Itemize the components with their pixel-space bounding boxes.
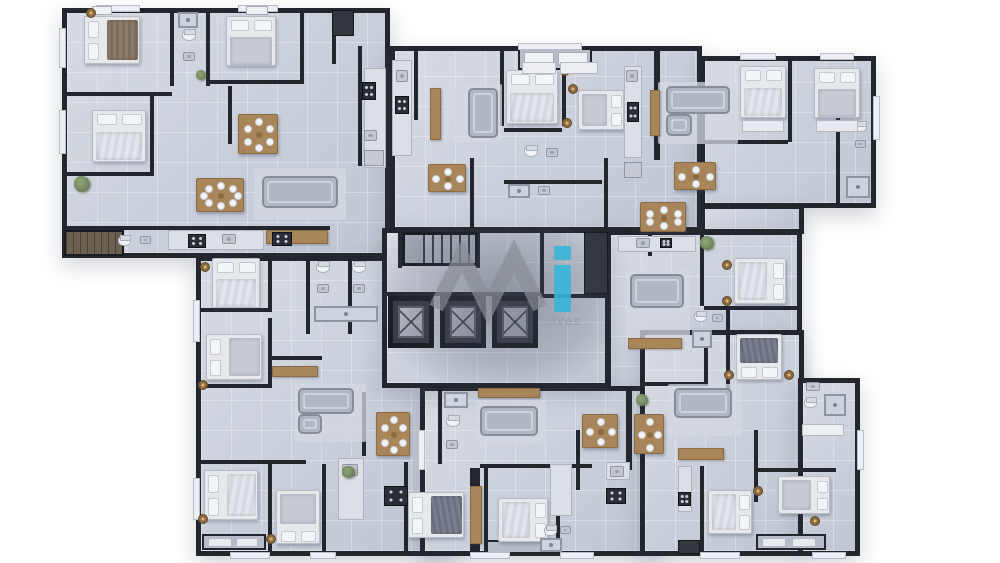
window-opening [873,96,880,140]
cooktop [188,234,206,248]
kitchen-sink [222,234,236,244]
bed-blanket [229,338,260,376]
utility-shaft [332,10,354,36]
bed-bench [816,120,858,132]
kitchen-sink [364,130,377,141]
toilet [182,30,196,41]
bed-blanket [712,494,736,530]
double-bed [84,16,140,64]
kitchen-counter [618,236,696,252]
cooktop [627,102,639,122]
bed-pillow [741,367,757,378]
table-centerpiece [598,429,604,435]
window-opening [59,28,66,68]
bed-blanket [216,279,256,307]
bed-pillow [412,518,423,534]
interior-wall [756,468,836,472]
bed-pillow [817,481,828,493]
bed-blanket [582,94,607,126]
refrigerator [364,150,384,166]
double-bed [708,490,752,534]
cooktop [362,82,376,100]
bed-pillow [511,74,530,85]
sofa [468,88,498,138]
kitchen-sink [396,70,408,82]
plant [700,236,714,250]
double-bed [578,90,624,130]
bathroom-sink [560,526,571,534]
kitchen-sink [626,70,638,82]
table-plate [674,218,682,226]
shower [508,184,530,198]
nightstand-lamp [200,262,210,272]
nightstand-lamp [266,534,276,544]
table-plate [244,125,252,133]
table-plate [381,424,389,432]
bed-blanket [738,262,767,300]
interior-wall [358,46,362,166]
toilet [544,526,557,536]
nightstand-lamp [198,514,208,524]
table-centerpiece [218,193,224,199]
dining-table [640,202,686,232]
bathroom-sink [855,140,866,148]
bed-bench [742,120,784,132]
wood-deck-terrace [64,230,124,256]
table-plate [597,418,605,426]
bed-pillow [88,21,99,38]
double-bed [212,258,260,308]
cooktop [384,486,408,506]
shower [824,394,846,416]
double-bed [506,70,558,124]
cooktop [678,492,691,506]
table-centerpiece [391,432,397,438]
bed-pillow [819,72,835,83]
nightstand-lamp [198,380,208,390]
bed-pillow [231,20,249,31]
window-opening [59,110,66,154]
window-opening [820,53,854,60]
nightstand-lamp [753,486,763,496]
interior-wall [62,172,154,176]
table-plate [266,125,274,133]
bed-pillow [281,531,296,542]
table-plate [255,144,263,152]
interior-wall [322,464,326,556]
bed-pillow [412,497,423,513]
kitchen-counter [168,230,264,250]
interior-wall [504,128,562,132]
bed-blanket [510,93,554,123]
table-plate [597,438,605,446]
bed-pillow [535,503,546,518]
table-plate [646,218,654,226]
table-plate [266,138,274,146]
bed-pillow [817,498,828,510]
window-opening [230,552,270,559]
table-plate [390,416,398,424]
window-opening [560,552,594,559]
bathroom-sink [446,440,458,449]
table-centerpiece [693,174,699,180]
table-centerpiece [256,132,262,138]
toilet [804,398,817,408]
closet-shelf [560,62,598,74]
table-plate [692,180,700,188]
bed-pillow [535,74,554,85]
table-plate [646,418,654,426]
window-opening [193,300,200,342]
shower [314,306,378,322]
double-bed [778,476,830,514]
bed-pillow [239,262,256,273]
nightstand-lamp [722,260,732,270]
table-plate [654,431,662,439]
elevator-car [398,306,424,338]
table-plate [638,431,646,439]
plant [342,466,355,478]
bed-pillow [739,495,750,510]
interior-wall [788,60,792,142]
plant [196,70,206,80]
double-bed [276,490,320,544]
interior-wall [62,92,172,96]
double-bed [204,470,258,520]
double-bed [92,110,146,162]
double-bed [814,68,860,118]
nightstand-lamp [86,8,96,18]
double-bed [226,16,276,66]
sofa [666,86,730,114]
closet-shelf [522,62,556,74]
shower [178,12,198,28]
sofa-chaise [298,414,322,434]
shower [540,538,562,552]
plant [636,394,648,406]
shower [444,392,468,408]
table-centerpiece [647,432,653,438]
table-plate [255,118,263,126]
table-centerpiece [445,176,451,182]
bathroom-sink [183,52,195,61]
tv-console [628,338,682,349]
interior-wall [576,430,580,490]
balcony-bench [792,538,816,547]
bed-pillow [611,95,622,108]
dining-table [428,164,466,192]
utility-shaft [678,540,700,554]
table-plate [390,446,398,454]
sideboard [678,448,724,460]
double-bed [734,258,786,304]
double-bed [736,334,782,380]
interior-wall [196,460,306,464]
cooktop [660,238,672,248]
cooktop [606,488,626,504]
tv-console [430,88,441,140]
dining-table [582,414,618,448]
table-centerpiece [661,215,667,221]
nightstand-lamp [568,84,578,94]
refrigerator [624,162,642,178]
interior-wall [300,8,304,84]
table-plate [200,192,208,200]
kitchen-sink [610,466,624,477]
interior-wall [306,256,310,334]
toilet [524,146,538,157]
sofa-chaise [666,114,692,136]
bed-pillow [88,43,99,60]
bed-pillow [217,262,234,273]
bed-pillow [210,339,221,355]
bed-blanket [740,338,778,363]
sofa [298,388,354,414]
nightstand-lamp [784,370,794,380]
dining-table [238,114,278,154]
table-plate [456,175,464,183]
bed-blanket [502,502,530,538]
table-plate [244,138,252,146]
table-plate [674,210,682,218]
sofa [480,406,538,436]
double-bed [740,66,786,118]
table-plate [660,222,668,230]
window-opening [812,552,846,559]
stair-landing [405,235,425,263]
interior-wall [206,8,210,86]
double-bed [408,492,464,538]
double-bed [206,334,262,380]
balcony-bench [236,538,258,547]
bed-pillow [97,114,117,125]
tv-console [478,388,540,398]
table-plate [399,424,407,432]
vent-box [246,6,268,15]
bed-pillow [254,20,272,31]
toilet [118,236,131,246]
bed-blanket [782,480,811,510]
interior-wall [272,356,322,360]
dining-table [634,414,664,454]
table-plate [678,173,686,181]
table-plate [608,428,616,436]
bed-pillow [208,498,219,516]
closet-shelf [802,424,844,436]
interior-wall [484,468,488,556]
toilet [446,416,460,427]
bed-pillow [301,531,316,542]
table-plate [229,199,237,207]
bathroom-sink [712,314,723,322]
interior-wall [438,386,442,464]
sofa [674,388,732,418]
bed-pillow [210,360,221,376]
table-plate [646,210,654,218]
sofa [630,274,684,308]
table-plate [586,428,594,436]
bathroom-sink [353,284,365,293]
window-opening [740,53,776,60]
wardrobe [470,486,482,544]
bathroom-sink [140,236,151,244]
bed-pillow [208,475,219,493]
interior-wall [170,8,174,86]
table-plate [444,168,452,176]
table-plate [381,439,389,447]
interior-wall [196,308,270,312]
cooktop [272,232,292,246]
table-plate [660,206,668,214]
bed-blanket [744,88,782,117]
table-plate [706,173,714,181]
sofa [262,176,338,208]
double-bed [498,498,548,542]
window-opening [418,430,425,470]
table-plate [432,175,440,183]
bed-pillow [762,367,778,378]
nightstand-lamp [722,296,732,306]
tv-console [650,90,660,136]
window-opening [700,552,740,559]
bed-blanket [230,37,272,65]
bed-pillow [745,70,761,81]
table-plate [692,166,700,174]
watermark-text: ives [553,314,582,328]
interior-wall [414,46,418,120]
bed-blanket [280,494,316,524]
interior-wall [704,306,802,310]
bathroom-sink [546,148,558,157]
interior-wall [150,96,154,174]
interior-wall [268,256,272,312]
bathroom-sink [538,186,550,195]
shower [692,330,712,348]
table-plate [217,202,225,210]
toilet [352,262,366,273]
bed-pillow [611,113,622,126]
interior-wall [228,86,232,144]
bed-blanket [431,496,462,534]
dining-table [376,412,410,456]
window-opening [857,430,864,470]
developer-watermark: ives [426,238,596,330]
window-opening [310,552,336,559]
interior-wall [700,466,704,556]
table-plate [399,439,407,447]
bed-blanket [818,89,856,117]
bed-pillow [773,263,784,279]
bed-pillow [773,284,784,300]
table-plate [205,185,213,193]
bed-blanket [96,132,142,161]
balcony-bench [762,538,786,547]
interior-wall [210,80,304,84]
nightstand-lamp [810,516,820,526]
interior-wall [470,158,474,232]
toilet [694,312,707,322]
bed-pillow [840,72,856,83]
nightstand-lamp [724,370,734,380]
floor-plan-canvas: ives [0,0,1000,563]
cooktop [395,96,409,114]
sideboard [272,366,318,377]
bed-blanket [107,20,138,60]
balcony-bench [208,538,232,547]
nightstand-lamp [562,118,572,128]
table-plate [217,182,225,190]
interior-wall [604,158,608,230]
table-plate [205,199,213,207]
toilet [316,262,330,273]
dining-table [196,178,244,212]
bathroom-sink [806,382,820,391]
dining-table [674,162,716,190]
window-opening [518,43,582,50]
window-opening [193,478,200,520]
table-plate [646,444,654,452]
table-plate [444,182,452,190]
shower [846,176,870,198]
bed-pillow [766,70,782,81]
bed-blanket [227,474,257,516]
bed-pillow [739,515,750,530]
plant [74,176,90,192]
kitchen-sink [636,238,650,248]
window-opening [470,552,510,559]
bed-pillow [122,114,142,125]
bathroom-sink [317,284,329,293]
interior-wall [626,386,632,470]
kitchen-counter [550,464,572,516]
